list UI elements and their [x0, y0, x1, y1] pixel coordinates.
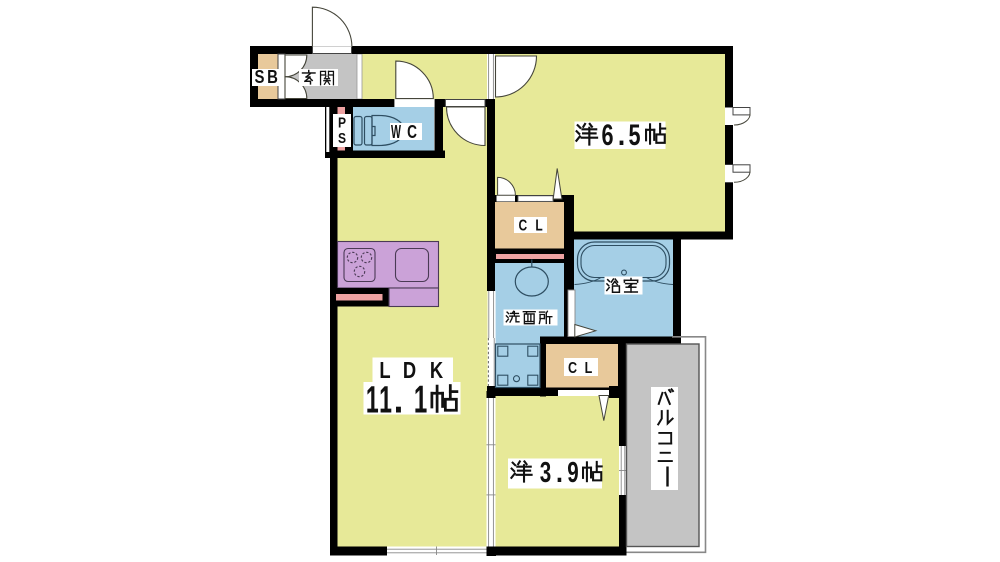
- svg-text:1: 1: [379, 377, 392, 421]
- svg-text:.: .: [556, 456, 563, 489]
- svg-text:K: K: [430, 358, 443, 383]
- svg-text:S: S: [338, 130, 346, 146]
- svg-text:3: 3: [540, 457, 551, 489]
- svg-text:C: C: [407, 122, 417, 142]
- svg-text:L: L: [585, 360, 593, 378]
- svg-text:6: 6: [601, 117, 613, 151]
- svg-text:W: W: [391, 123, 402, 143]
- svg-text:.: .: [618, 119, 626, 153]
- svg-text:S: S: [255, 67, 265, 88]
- svg-text:1: 1: [366, 377, 379, 421]
- svg-text:L: L: [535, 216, 542, 234]
- svg-text:9: 9: [567, 457, 578, 489]
- svg-text:5: 5: [628, 117, 640, 151]
- svg-text:C: C: [568, 360, 578, 378]
- svg-text:.: .: [394, 378, 404, 421]
- svg-text:P: P: [338, 114, 346, 130]
- svg-text:B: B: [267, 67, 278, 88]
- svg-text:C: C: [518, 216, 527, 234]
- svg-text:1: 1: [414, 378, 427, 421]
